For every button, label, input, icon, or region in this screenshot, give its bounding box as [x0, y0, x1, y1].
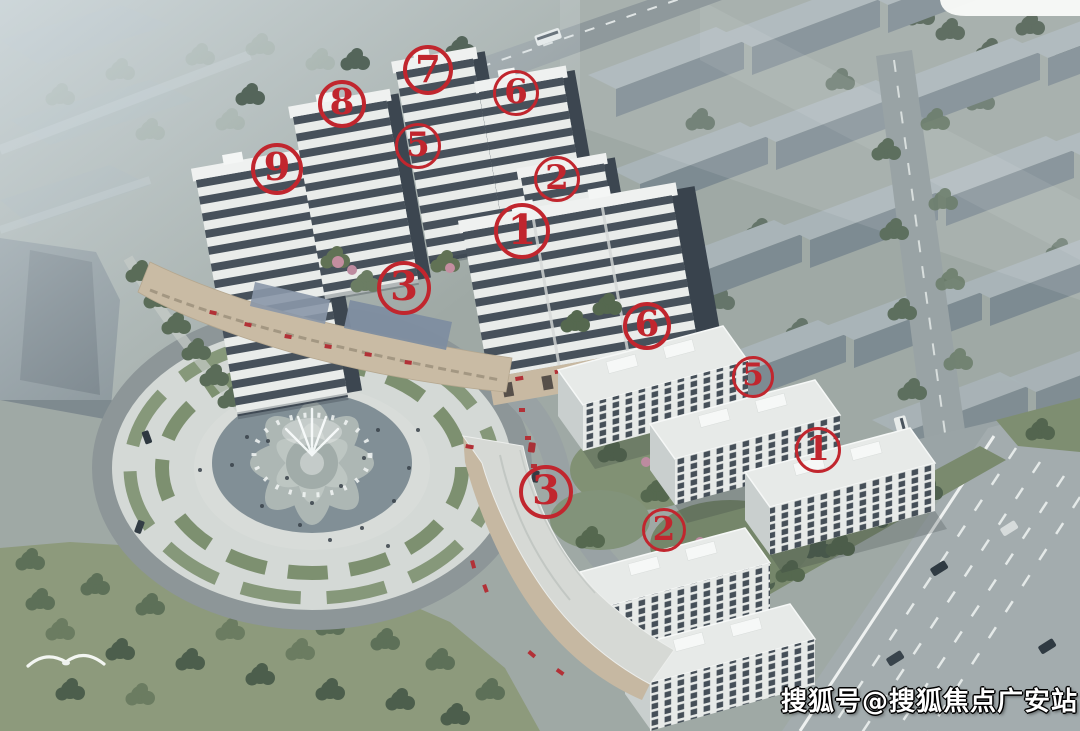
corner-caption-blob	[940, 0, 1080, 16]
site-plan-scene	[0, 0, 1080, 731]
aerial-rendering-image: 9875621365132 搜狐号@搜狐焦点广安站	[0, 0, 1080, 731]
watermark-sohu: 搜狐号@搜狐焦点广安站	[781, 681, 1078, 718]
